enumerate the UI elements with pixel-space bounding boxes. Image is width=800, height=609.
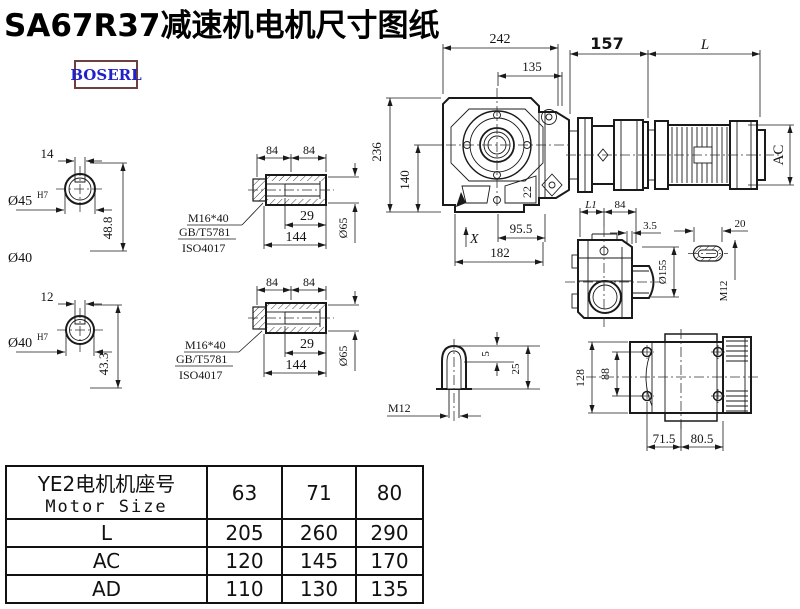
- dim-dia-65-b: Ø65: [336, 346, 350, 367]
- dim-20: 20: [735, 218, 747, 230]
- label-std-iso-b: ISO4017: [179, 368, 222, 382]
- cell-AC-80: 170: [356, 547, 423, 575]
- label-std-iso-a: ISO4017: [182, 241, 225, 255]
- dim-shaft-40-label: Ø40: [8, 251, 32, 266]
- key-detail-view: 5 25 M12: [387, 332, 540, 424]
- dim-bore-40-tol: H7: [37, 332, 48, 342]
- cell-AC-71: 145: [282, 547, 356, 575]
- cell-AD-80: 135: [356, 575, 423, 603]
- sleeve-view-a: 84 84 29 144 Ø65 M16*40 GB/T5781 ISO4017: [178, 143, 359, 255]
- sleeve-view-b: 84 84 29 144 Ø65 M16*40 GB/T5781 ISO4017: [175, 275, 359, 382]
- dim-25: 25: [510, 363, 522, 375]
- dim-bore-45: Ø45: [8, 194, 32, 209]
- dim-95-5: 95.5: [510, 221, 533, 236]
- row-label-AC: AC: [6, 547, 207, 575]
- cell-AC-63: 120: [207, 547, 282, 575]
- dim-140: 140: [397, 170, 412, 190]
- table-col-71: 71: [282, 466, 356, 519]
- row-label-AD: AD: [6, 575, 207, 603]
- dim-L: L: [700, 37, 709, 53]
- dim-key-width-14: 14: [41, 146, 55, 161]
- dim-bore-45-tol: H7: [37, 190, 48, 200]
- dim-3-5: 3.5: [643, 220, 657, 232]
- table-col-63: 63: [207, 466, 282, 519]
- dim-L1: L1: [584, 199, 597, 211]
- motor-size-table: YE2电机机座号 Motor Size 63 71 80 L 205 260 2…: [5, 465, 424, 604]
- dim-29: 29: [300, 209, 314, 224]
- dim-157: 157: [590, 34, 623, 53]
- table-row-AC: AC 120 145 170: [6, 547, 423, 575]
- dim-84-b: 84: [303, 143, 315, 157]
- dim-144-b: 144: [286, 358, 307, 373]
- dim-128: 128: [573, 369, 587, 387]
- gearbox-side-view: L1 84 3.5 Ø155 20 M12: [565, 199, 748, 327]
- dim-angle-22: 22: [520, 186, 534, 198]
- label-bolt-m16-b: M16*40: [185, 338, 226, 352]
- cell-L-71: 260: [282, 519, 356, 547]
- table-col-80: 80: [356, 466, 423, 519]
- table-header-motor-size: YE2电机机座号 Motor Size: [6, 466, 207, 519]
- dim-88: 88: [598, 368, 612, 380]
- dim-71-5: 71.5: [653, 431, 676, 446]
- cell-L-63: 205: [207, 519, 282, 547]
- dim-144: 144: [286, 230, 307, 245]
- row-label-L: L: [6, 519, 207, 547]
- table-header-en: Motor Size: [7, 497, 206, 517]
- label-x-marker: X: [469, 232, 479, 247]
- dim-5: 5: [480, 351, 492, 357]
- dim-242: 242: [490, 32, 511, 47]
- cell-AD-63: 110: [207, 575, 282, 603]
- dim-80-5: 80.5: [691, 431, 714, 446]
- cell-AD-71: 130: [282, 575, 356, 603]
- dim-29-b: 29: [300, 337, 314, 352]
- dim-236: 236: [369, 142, 384, 162]
- dim-84-d: 84: [303, 275, 315, 289]
- table-row-L: L 205 260 290: [6, 519, 423, 547]
- dim-84-c: 84: [266, 275, 278, 289]
- dim-dia-65-a: Ø65: [336, 218, 350, 239]
- dim-AC: AC: [771, 145, 787, 166]
- dim-84-side: 84: [615, 199, 627, 211]
- label-bolt-m16-a: M16*40: [188, 211, 229, 225]
- table-header-cn: YE2电机机座号: [7, 468, 206, 497]
- label-std-gb-b: GB/T5781: [176, 352, 227, 366]
- dim-84-a: 84: [266, 143, 278, 157]
- dim-depth-43-3: 43.3: [96, 353, 111, 376]
- dim-key-width-12: 12: [41, 289, 54, 304]
- label-m12-key: M12: [388, 401, 411, 415]
- dim-bore-40: Ø40: [8, 336, 32, 351]
- dim-dia-155: Ø155: [657, 259, 669, 284]
- shaft-section-45-view: 14 Ø45 H7 48.8 Ø40: [8, 146, 127, 266]
- dim-m12-side: M12: [718, 281, 730, 302]
- cell-L-80: 290: [356, 519, 423, 547]
- dim-182: 182: [490, 245, 510, 260]
- dim-depth-48-8: 48.8: [100, 217, 115, 240]
- label-std-gb-a: GB/T5781: [179, 225, 230, 239]
- table-row-AD: AD 110 130 135: [6, 575, 423, 603]
- gearmotor-top-view: 128 88 71.5 80.5: [573, 329, 760, 451]
- dim-135: 135: [522, 59, 542, 74]
- shaft-section-40-view: 12 Ø40 H7 43.3: [8, 289, 122, 388]
